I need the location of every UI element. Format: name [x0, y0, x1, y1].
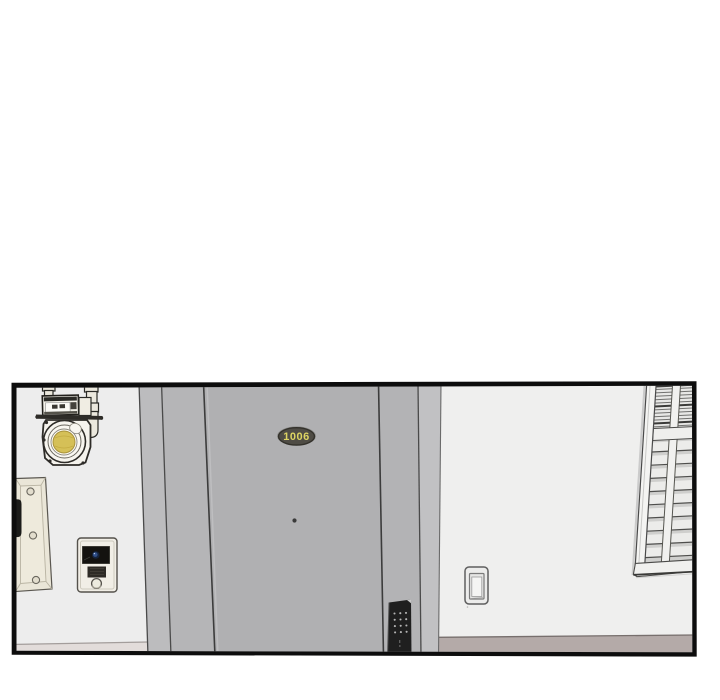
svg-text:1006: 1006	[283, 431, 309, 443]
